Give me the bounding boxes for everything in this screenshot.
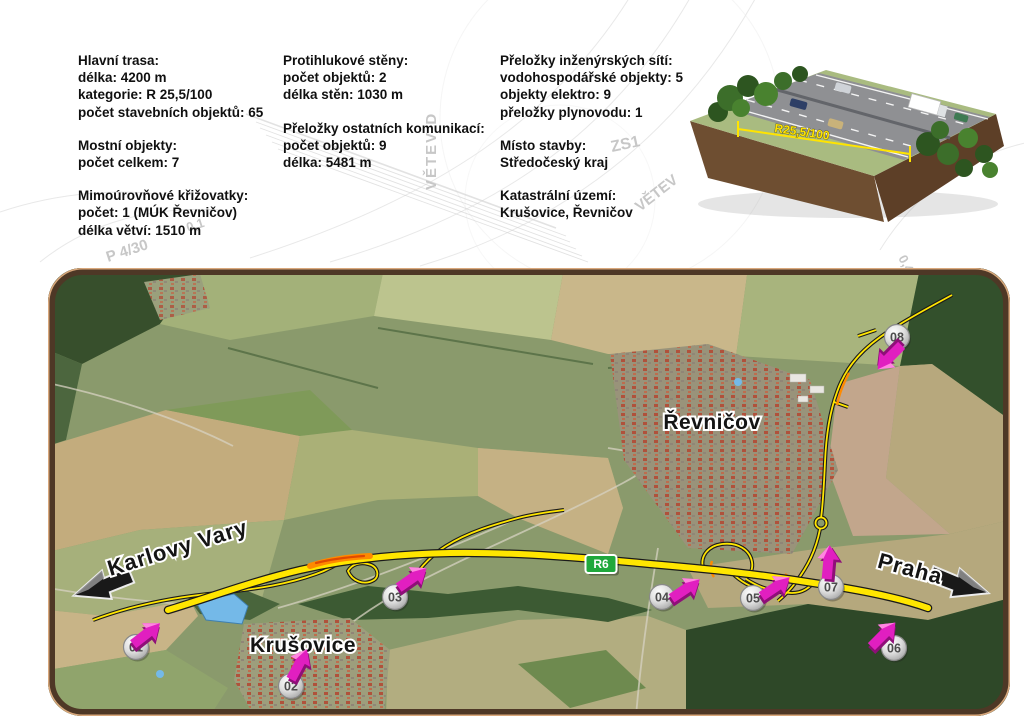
info-line: délka větví: 1510 m [78, 222, 288, 239]
info-line: Přeložky ostatních komunikací: [283, 120, 493, 137]
project-infographic: VĚTEV D ZS1 VĚTEV P 4/30 0,1 0,4 Hlavní … [0, 0, 1024, 724]
info-line: Hlavní trasa: [78, 52, 288, 69]
info-line: Mimoúrovňové křižovatky: [78, 187, 288, 204]
route-number-badge: R6 [586, 555, 620, 576]
info-line: délka stěn: 1030 m [283, 86, 493, 103]
info-line: Mostní objekty: [78, 137, 288, 154]
info-block-mostni-objekty: Mostní objekty: počet celkem: 7 [78, 137, 288, 171]
road-cross-section-illustration: R25,5/100 [678, 26, 1012, 228]
marker-label: 04 [655, 591, 669, 605]
info-line: Protihlukové stěny: [283, 52, 493, 69]
marker-label: 07 [824, 581, 838, 595]
marker-label: 06 [887, 642, 901, 656]
info-block-prelozky-komunikaci: Přeložky ostatních komunikací: počet obj… [283, 120, 493, 172]
marker-label: 05 [746, 592, 760, 606]
info-line: počet objektů: 9 [283, 137, 493, 154]
town-label-revnicov: Řevničov [663, 410, 760, 434]
route-number-label: R6 [593, 557, 609, 571]
info-line: počet: 1 (MÚK Řevničov) [78, 204, 288, 221]
village-krusovice-area [234, 618, 390, 716]
info-column-main: Hlavní trasa: délka: 4200 m kategorie: R… [78, 52, 288, 255]
info-block-protihlukove: Protihlukové stěny: počet objektů: 2 dél… [283, 52, 493, 104]
pond-small [156, 670, 164, 678]
info-block-krizovatky: Mimoúrovňové křižovatky: počet: 1 (MÚK Ř… [78, 187, 288, 239]
pond-revnicov [734, 378, 742, 386]
info-line: počet objektů: 2 [283, 69, 493, 86]
site-map: R6 Karlovy Vary Praha Řevničov Kr [48, 268, 1010, 721]
info-column-steny: Protihlukové stěny: počet objektů: 2 dél… [283, 52, 493, 187]
info-line: délka: 4200 m [78, 69, 288, 86]
info-line: kategorie: R 25,5/100 [78, 86, 288, 103]
info-line: počet celkem: 7 [78, 154, 288, 171]
info-line: délka: 5481 m [283, 154, 493, 171]
info-block-hlavni-trasa: Hlavní trasa: délka: 4200 m kategorie: R… [78, 52, 288, 121]
info-line: počet stavebních objektů: 65 [78, 104, 288, 121]
